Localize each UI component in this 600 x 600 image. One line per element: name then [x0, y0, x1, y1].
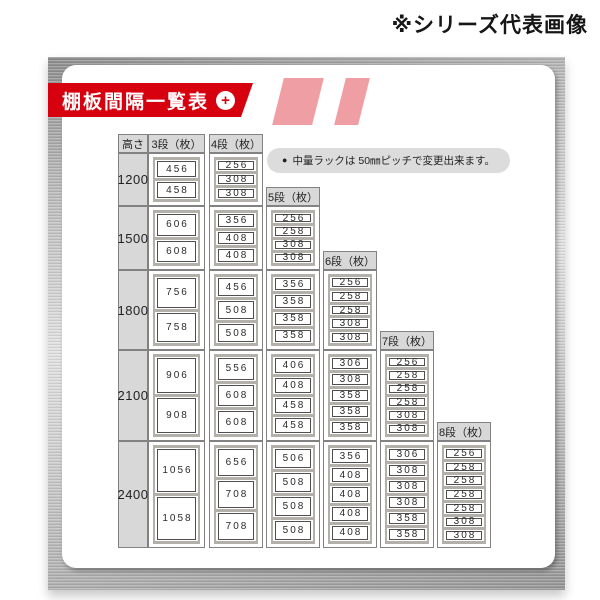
shelf-gap-value: 408: [332, 487, 368, 501]
tier-column-header: 3段（枚）: [148, 134, 205, 153]
shelf-gap-value: 308: [332, 374, 368, 385]
tier-cell: 656708708: [209, 441, 263, 548]
shelf-divider: [387, 461, 427, 464]
shelf-gap-value: 906: [157, 358, 196, 393]
shelf-gap-value: 556: [218, 358, 254, 380]
shelf-gap-value: 458: [275, 418, 311, 433]
shelf-gap-value: 708: [218, 513, 254, 540]
shelf-gap-value: 256: [389, 358, 425, 366]
shelf-gap-value: 358: [275, 313, 311, 325]
shelf-gap-value: 256: [275, 214, 311, 222]
shelf-gap-value: 606: [157, 214, 196, 236]
shelf-gap-value: 256: [446, 449, 482, 458]
tier-cell: 406408458458: [266, 350, 320, 441]
tier-cell: 606608: [148, 206, 205, 270]
shelf-gap-value: 408: [275, 378, 311, 393]
shelf-frame: 356408408408408: [328, 445, 372, 544]
shelf-divider: [273, 394, 313, 397]
shelf-gap-value: 406: [275, 358, 311, 373]
tier-cell: 306308308308358358: [380, 441, 434, 548]
shelf-gap-value: 506: [275, 449, 311, 468]
shelf-gap-value: 308: [275, 241, 311, 249]
shelf-gap-value: 308: [275, 254, 311, 262]
shelf-gap-value: 456: [218, 278, 254, 296]
shelf-gap-value: 258: [389, 398, 425, 406]
shelf-divider: [387, 509, 427, 512]
shelf-gap-value: 1058: [157, 497, 196, 540]
shelf-divider: [330, 370, 370, 373]
tier-cell: 906908: [148, 350, 205, 441]
shelf-divider: [273, 469, 313, 472]
shelf-divider: [330, 483, 370, 486]
shelf-gap-value: 258: [446, 490, 482, 499]
shelf-frame: 906908: [153, 354, 200, 437]
shelf-divider: [273, 309, 313, 312]
tier-column-header: 7段（枚）: [380, 331, 434, 350]
shelf-divider: [273, 291, 313, 294]
tier-cell: 256258258308308: [323, 270, 377, 350]
shelf-divider: [216, 477, 256, 480]
shelf-frame: 256258258308308: [328, 274, 372, 346]
shelf-divider: [216, 297, 256, 300]
tier-cell: 556608608: [209, 350, 263, 441]
shelf-gap-value: 508: [275, 473, 311, 492]
shelf-gap-value: 908: [157, 398, 196, 433]
shelf-divider: [273, 493, 313, 496]
height-cell: 2400: [118, 441, 148, 548]
shelf-divider: [330, 418, 370, 421]
shelf-gap-value: 358: [332, 422, 368, 433]
shelf-frame: 556608608: [214, 354, 258, 437]
tier-cell: 456458: [148, 153, 205, 206]
tier-cell: 10561058: [148, 441, 205, 548]
tier-column-header: 5段（枚）: [266, 187, 320, 206]
shelf-divider: [216, 245, 256, 248]
shelf-divider: [216, 407, 256, 410]
shelf-frame: 256258258258308308: [385, 354, 429, 437]
shelf-gap-value: 456: [157, 161, 196, 177]
shelf-gap-value: 308: [218, 175, 254, 184]
shelf-gap-value: 258: [446, 504, 482, 513]
shelf-gap-value: 258: [332, 292, 368, 301]
shelf-gap-value: 408: [332, 468, 368, 482]
shelf-frame: 356408408: [214, 210, 258, 266]
tier-column-header: 6段（枚）: [323, 251, 377, 270]
tier-cell: 256258258258258308308: [437, 441, 491, 548]
shelf-gap-value: 356: [218, 214, 254, 227]
shelf-gap-value: 258: [446, 463, 482, 472]
shelf-gap-value: 708: [218, 481, 254, 508]
shelf-gap-value: 1056: [157, 449, 196, 492]
shelf-divider: [273, 414, 313, 417]
shelf-divider: [273, 326, 313, 329]
shelf-frame: 756758: [153, 274, 200, 346]
shelf-frame: 606608: [153, 210, 200, 266]
shelf-gap-value: 608: [218, 411, 254, 433]
shelf-divider: [387, 525, 427, 528]
shelf-gap-value: 308: [446, 531, 482, 540]
shelf-gap-value: 358: [275, 330, 311, 342]
shelf-gap-value: 758: [157, 313, 196, 343]
shelf-divider: [216, 320, 256, 323]
tier-cell: 456508508: [209, 270, 263, 350]
shelf-gap-value: 358: [275, 295, 311, 307]
shelf-divider: [330, 522, 370, 525]
shelf-gap-value: 508: [275, 521, 311, 540]
shelf-frame: 406408458458: [271, 354, 315, 437]
shelf-gap-value: 308: [389, 425, 425, 433]
shelf-gap-value: 258: [389, 385, 425, 393]
shelf-gap-value: 258: [275, 227, 311, 235]
shelf-divider: [216, 381, 256, 384]
tier-cell: 356358358358: [266, 270, 320, 350]
height-column-header: 高さ: [118, 134, 148, 153]
shelf-gap-value: 356: [332, 449, 368, 463]
tier-column-header: 4段（枚）: [209, 134, 263, 153]
shelf-divider: [330, 464, 370, 467]
shelf-gap-value: 608: [218, 385, 254, 407]
shelf-divider: [273, 517, 313, 520]
shelf-gap-value: 258: [446, 476, 482, 485]
shelf-gap-value: 308: [389, 411, 425, 419]
shelf-gap-value: 308: [332, 333, 368, 342]
shelf-frame: 256258308308: [271, 210, 315, 266]
shelf-gap-value: 308: [389, 465, 425, 476]
shelf-gap-value: 756: [157, 278, 196, 308]
tier-cell: 256258258258308308: [380, 350, 434, 441]
shelf-gap-value: 508: [218, 324, 254, 342]
shelf-divider: [330, 402, 370, 405]
height-cell: 1800: [118, 270, 148, 350]
shelf-frame: 456458: [153, 157, 200, 202]
shelf-frame: 306308308308358358: [385, 445, 429, 544]
shelf-divider: [387, 493, 427, 496]
shelf-divider: [155, 237, 198, 240]
shelf-frame: 306308358358358: [328, 354, 372, 437]
shelf-frame: 656708708: [214, 445, 258, 544]
shelf-gap-value: 256: [218, 161, 254, 170]
shelf-divider: [273, 374, 313, 377]
shelf-gap-value: 508: [218, 301, 254, 319]
tier-cell: 356408408: [209, 206, 263, 270]
shelf-gap-value: 258: [332, 306, 368, 315]
shelf-divider: [330, 503, 370, 506]
tier-cell: 356408408408408: [323, 441, 377, 548]
shelf-frame: 506508508508: [271, 445, 315, 544]
shelf-divider: [155, 309, 198, 312]
shelf-gap-value: 358: [389, 529, 425, 540]
shelf-divider: [387, 477, 427, 480]
shelf-gap-value: 408: [218, 232, 254, 245]
shelf-divider: [330, 386, 370, 389]
shelf-gap-value: 408: [332, 507, 368, 521]
shelf-frame: 256258258258258308308: [442, 445, 486, 544]
shelf-frame: 456508508: [214, 274, 258, 346]
shelf-gap-value: 458: [275, 398, 311, 413]
shelf-gap-value: 508: [275, 497, 311, 516]
shelf-gap-value: 358: [389, 513, 425, 524]
shelf-frame: 356358358358: [271, 274, 315, 346]
shelf-gap-value: 308: [389, 497, 425, 508]
shelf-frame: 256308308: [214, 157, 258, 202]
height-cell: 1500: [118, 206, 148, 270]
shelf-gap-value: 656: [218, 449, 254, 476]
tier-cell: 256258308308: [266, 206, 320, 270]
shelf-frame: 10561058: [153, 445, 200, 544]
shelf-divider: [155, 394, 198, 397]
shelf-gap-value: 308: [446, 518, 482, 527]
shelf-gap-value: 306: [332, 358, 368, 369]
tier-column-header: 8段（枚）: [437, 422, 491, 441]
shelf-gap-value: 358: [332, 406, 368, 417]
shelf-gap-value: 256: [332, 278, 368, 287]
shelf-gap-value: 306: [389, 449, 425, 460]
shelf-spacing-table: 高さ120015001800210024003段（枚）4564586066087…: [0, 0, 600, 600]
shelf-divider: [216, 228, 256, 231]
tier-cell: 506508508508: [266, 441, 320, 548]
shelf-gap-value: 408: [332, 526, 368, 540]
shelf-divider: [155, 178, 198, 181]
shelf-gap-value: 308: [332, 319, 368, 328]
product-image: ※シリーズ代表画像 棚板間隔一覧表 + ● 中量ラックは 50㎜ピッチで変更出来…: [0, 0, 600, 600]
tier-cell: 256308308: [209, 153, 263, 206]
shelf-gap-value: 458: [157, 182, 196, 198]
shelf-divider: [155, 493, 198, 496]
shelf-gap-value: 356: [275, 278, 311, 290]
shelf-gap-value: 358: [332, 390, 368, 401]
shelf-gap-value: 258: [389, 371, 425, 379]
shelf-gap-value: 608: [157, 241, 196, 263]
shelf-divider: [216, 509, 256, 512]
shelf-gap-value: 308: [389, 481, 425, 492]
height-cell: 2100: [118, 350, 148, 441]
shelf-gap-value: 308: [218, 189, 254, 198]
height-cell: 1200: [118, 153, 148, 206]
tier-cell: 306308358358358: [323, 350, 377, 441]
shelf-gap-value: 408: [218, 249, 254, 262]
tier-cell: 756758: [148, 270, 205, 350]
